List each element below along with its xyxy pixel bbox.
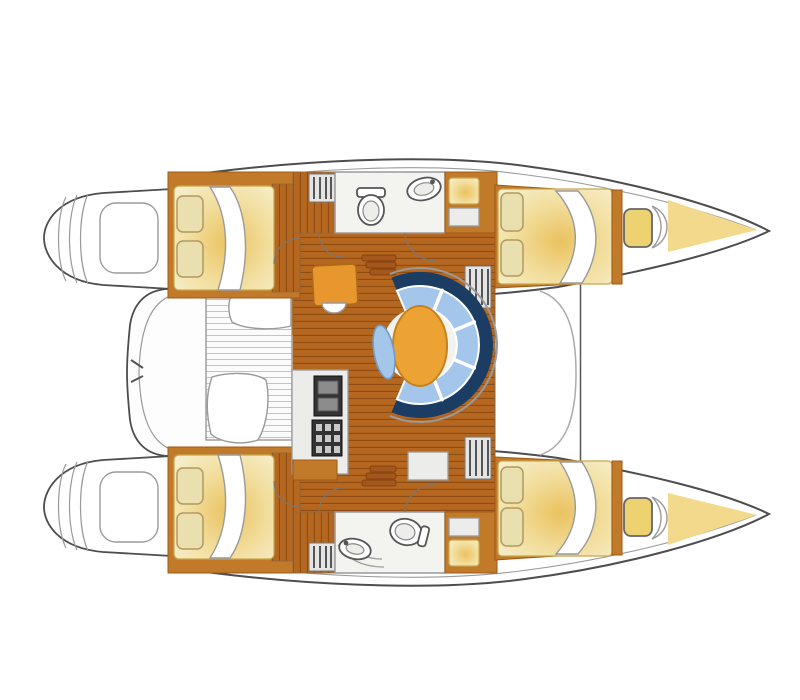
cockpit-seat-aft [207,373,268,442]
locker-top [449,518,479,536]
forward-bulkhead [612,190,622,284]
port-aft-cabin [168,172,300,298]
companionway-steps-starboard [465,437,491,479]
pillow [177,513,203,549]
forward-bulkhead [612,461,622,555]
pillow [501,240,523,276]
locker-seat [449,540,479,566]
hull-lockers [445,172,497,233]
pillow [501,508,523,546]
bow-locker-hatch [624,498,652,536]
hull-steps-grate [309,174,335,202]
locker-seat [449,178,479,204]
starboard-aft-cabin [168,447,300,573]
saloon-front-curve [540,291,576,455]
pillow [177,468,203,504]
hull-lockers [445,512,497,573]
toilet-icon [357,188,385,225]
cockpit [127,289,296,456]
pillow [501,467,523,503]
galley-cabinet [293,460,337,480]
locker-top [449,208,479,226]
galley-counter-forward [408,452,448,480]
pillow [177,241,203,277]
pillow [501,193,523,231]
bow-locker-hatch [624,209,652,247]
hull-steps-grate [309,543,335,571]
dinette-table [393,306,447,386]
port-stern-swim-platform [44,189,172,289]
pillow [177,196,203,232]
chart-table [312,264,358,306]
catamaran-floor-plan [0,0,800,700]
starboard-stern-swim-platform [44,456,172,556]
